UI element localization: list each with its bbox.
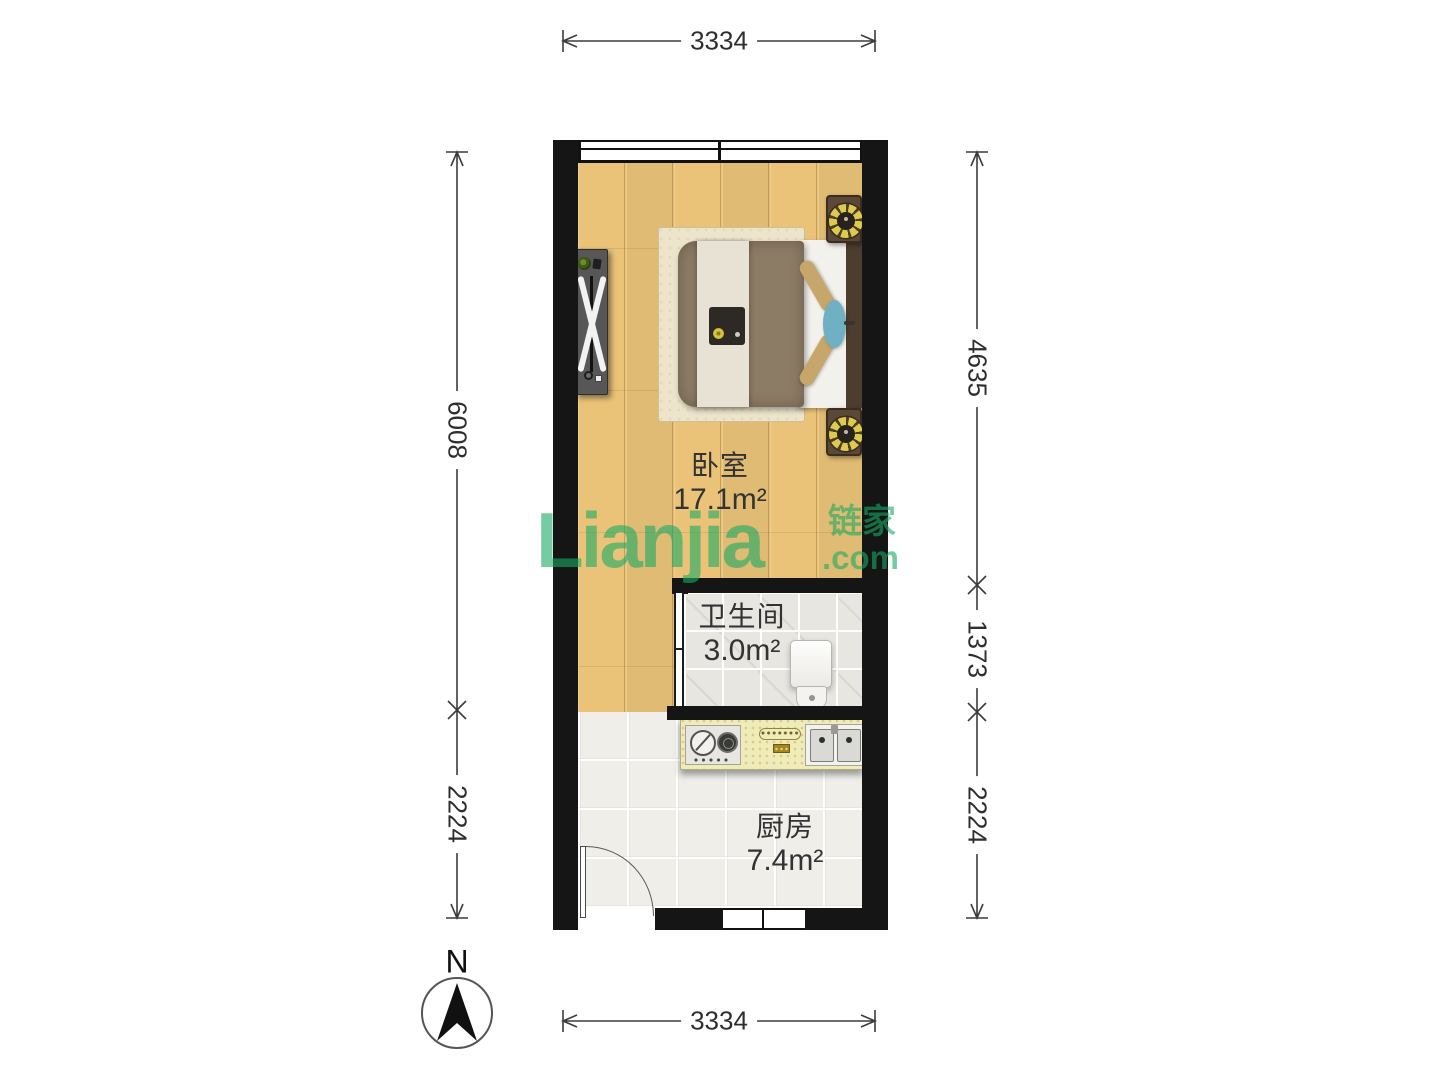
north-arrow-icon: [423, 979, 491, 1047]
dim-top: 3334: [681, 25, 757, 58]
dim-bottom: 3334: [681, 1005, 757, 1038]
dim-left-upper: 6008: [441, 391, 474, 469]
compass: [421, 977, 493, 1049]
dim-right-lower: 2224: [961, 776, 994, 854]
dim-left-lower: 2224: [441, 775, 474, 853]
floorplan-canvas: Lianjia 链家 .com 卧室 17.1m² 卫生间 3.0m² 厨房 7…: [0, 0, 1440, 1080]
dimension-lines: [0, 0, 1440, 1080]
compass-north-label: N: [445, 944, 468, 981]
dim-right-upper: 4635: [961, 329, 994, 407]
dim-right-middle: 1373: [961, 610, 994, 688]
